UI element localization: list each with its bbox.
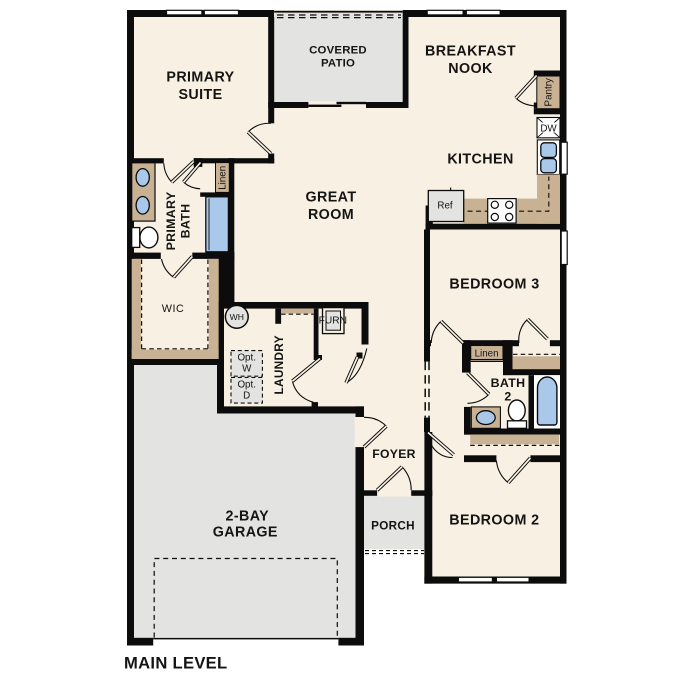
svg-text:2: 2 [504,390,511,404]
svg-text:PRIMARY: PRIMARY [166,70,234,86]
svg-text:ROOM: ROOM [308,207,354,223]
svg-text:FOYER: FOYER [372,447,415,461]
svg-text:COVERED: COVERED [309,44,367,56]
svg-text:WH: WH [230,312,244,322]
svg-text:WIC: WIC [162,303,185,315]
svg-text:BATH: BATH [491,376,526,390]
svg-text:BEDROOM 3: BEDROOM 3 [449,277,539,293]
svg-text:NOOK: NOOK [448,61,493,77]
svg-text:Opt.: Opt. [237,352,256,363]
svg-text:MAIN LEVEL: MAIN LEVEL [124,653,228,672]
svg-text:BEDROOM 2: BEDROOM 2 [449,512,539,528]
svg-text:Opt.: Opt. [237,379,256,390]
svg-text:SUITE: SUITE [178,87,222,103]
svg-text:Linen: Linen [218,166,229,190]
svg-text:DW: DW [540,123,557,134]
svg-text:Linen: Linen [475,348,499,359]
svg-text:FURN: FURN [319,315,347,326]
svg-text:2-BAY: 2-BAY [226,509,270,525]
svg-text:GREAT: GREAT [306,190,357,206]
svg-text:W: W [242,363,252,374]
svg-text:GARAGE: GARAGE [213,524,278,540]
svg-text:D: D [243,390,250,401]
svg-text:Ref: Ref [437,200,453,211]
svg-text:PATIO: PATIO [321,57,355,69]
svg-text:BREAKFAST: BREAKFAST [425,44,516,60]
svg-text:Pantry: Pantry [543,78,554,106]
svg-text:LAUNDRY: LAUNDRY [272,335,286,394]
svg-text:PORCH: PORCH [371,520,415,533]
svg-text:KITCHEN: KITCHEN [447,151,513,167]
